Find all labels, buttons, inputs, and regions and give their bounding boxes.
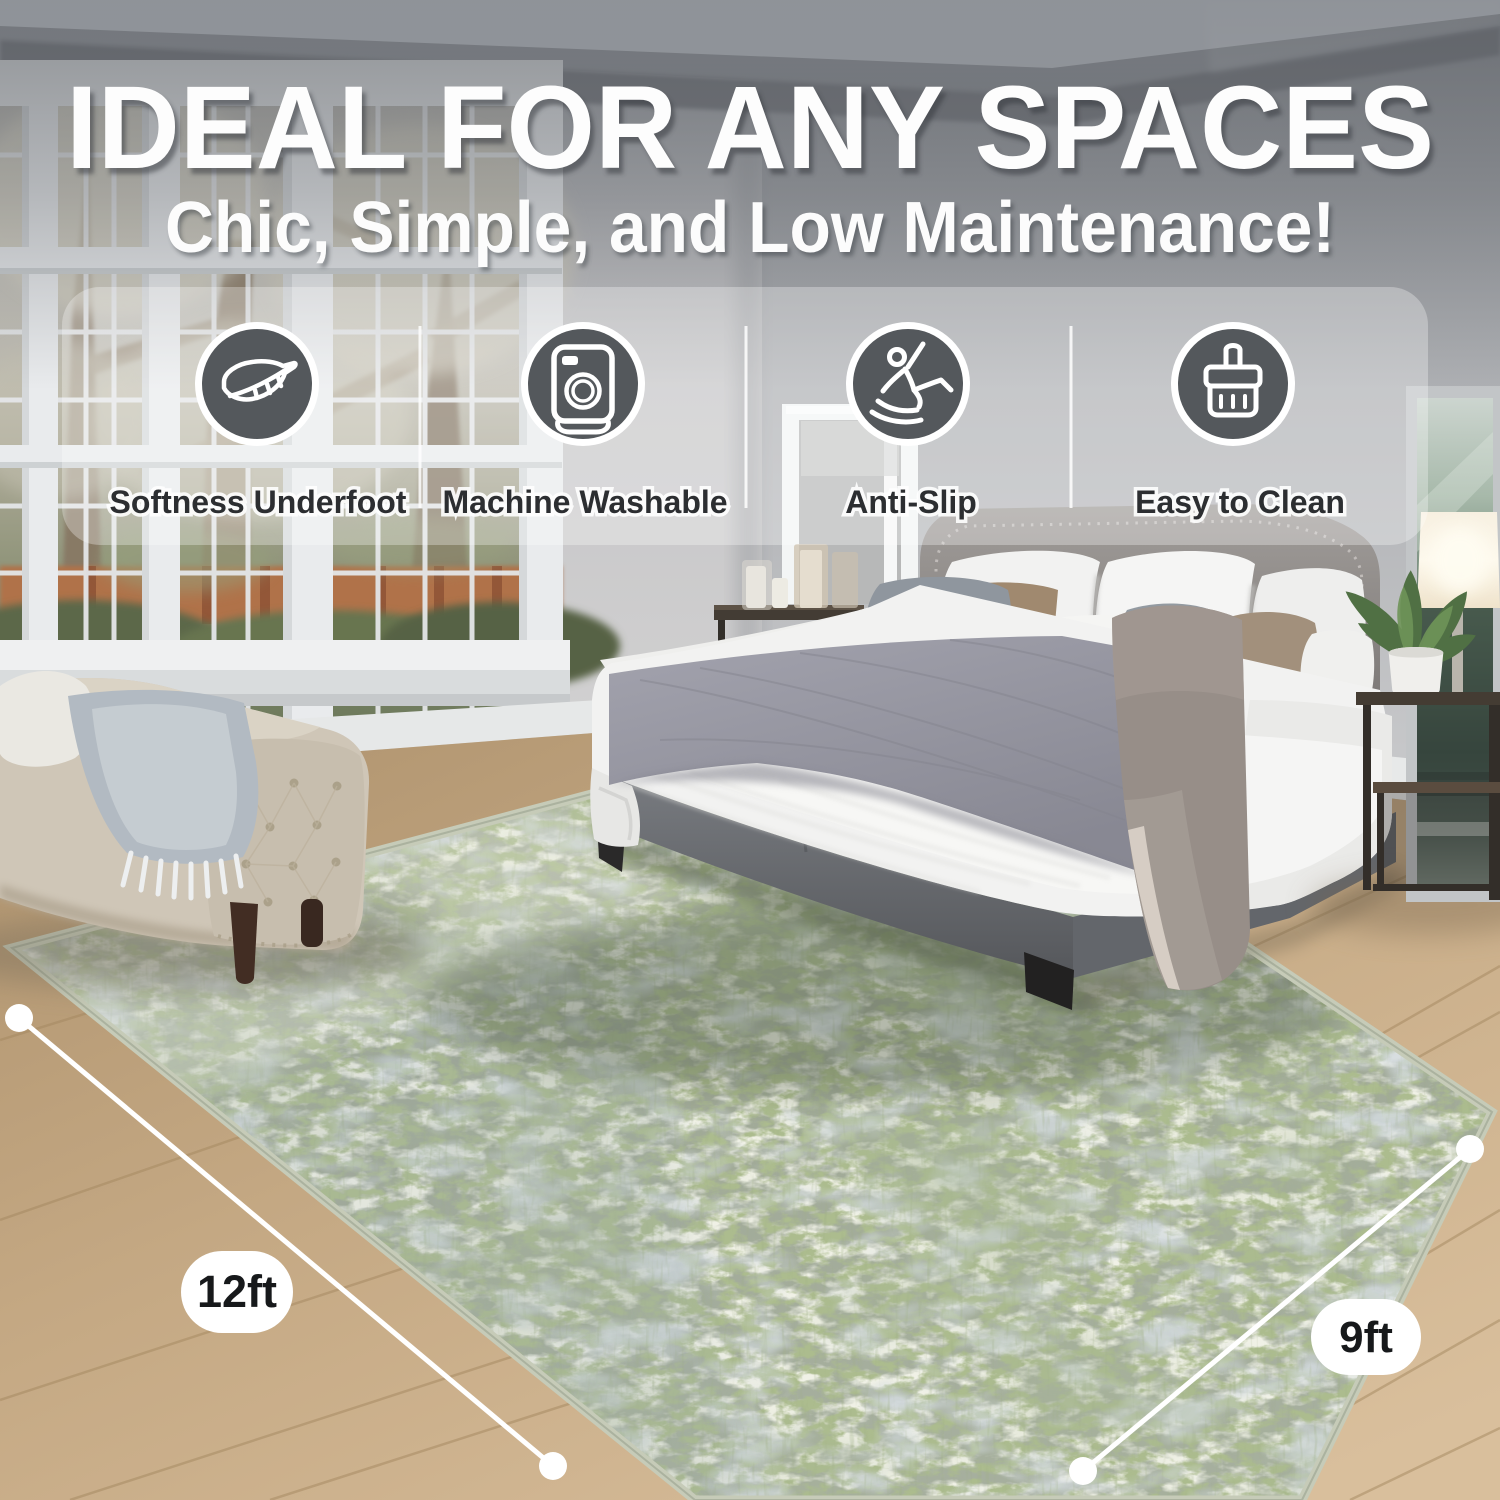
svg-text:12ft: 12ft bbox=[197, 1266, 277, 1317]
svg-text:Easy to Clean: Easy to Clean bbox=[1135, 484, 1345, 520]
svg-text:Machine Washable: Machine Washable bbox=[442, 484, 727, 520]
svg-text:Softness Underfoot: Softness Underfoot bbox=[110, 484, 407, 520]
svg-text:Anti-Slip: Anti-Slip bbox=[845, 484, 977, 520]
svg-text:Chic, Simple, and Low Maintena: Chic, Simple, and Low Maintenance! bbox=[165, 188, 1335, 268]
svg-text:IDEAL FOR ANY SPACES: IDEAL FOR ANY SPACES bbox=[66, 62, 1434, 194]
svg-text:9ft: 9ft bbox=[1339, 1313, 1393, 1362]
